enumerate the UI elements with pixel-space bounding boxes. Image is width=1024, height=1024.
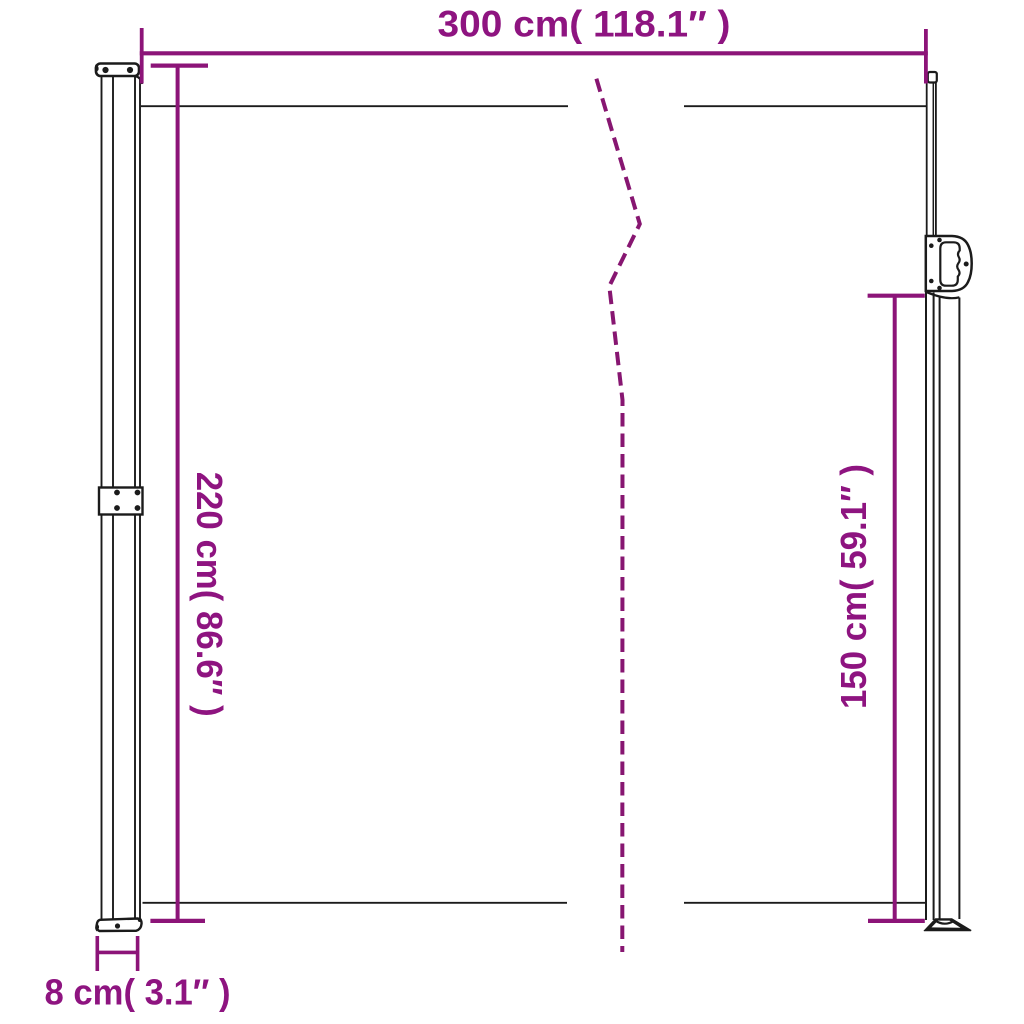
- svg-text:300 cm( 118.1″ ): 300 cm( 118.1″ ): [438, 4, 731, 45]
- svg-text:220 cm( 86.6″ ): 220 cm( 86.6″ ): [189, 472, 230, 717]
- svg-text:150 cm( 59.1″ ): 150 cm( 59.1″ ): [833, 464, 874, 709]
- svg-text:8 cm( 3.1″ ): 8 cm( 3.1″ ): [45, 972, 231, 1013]
